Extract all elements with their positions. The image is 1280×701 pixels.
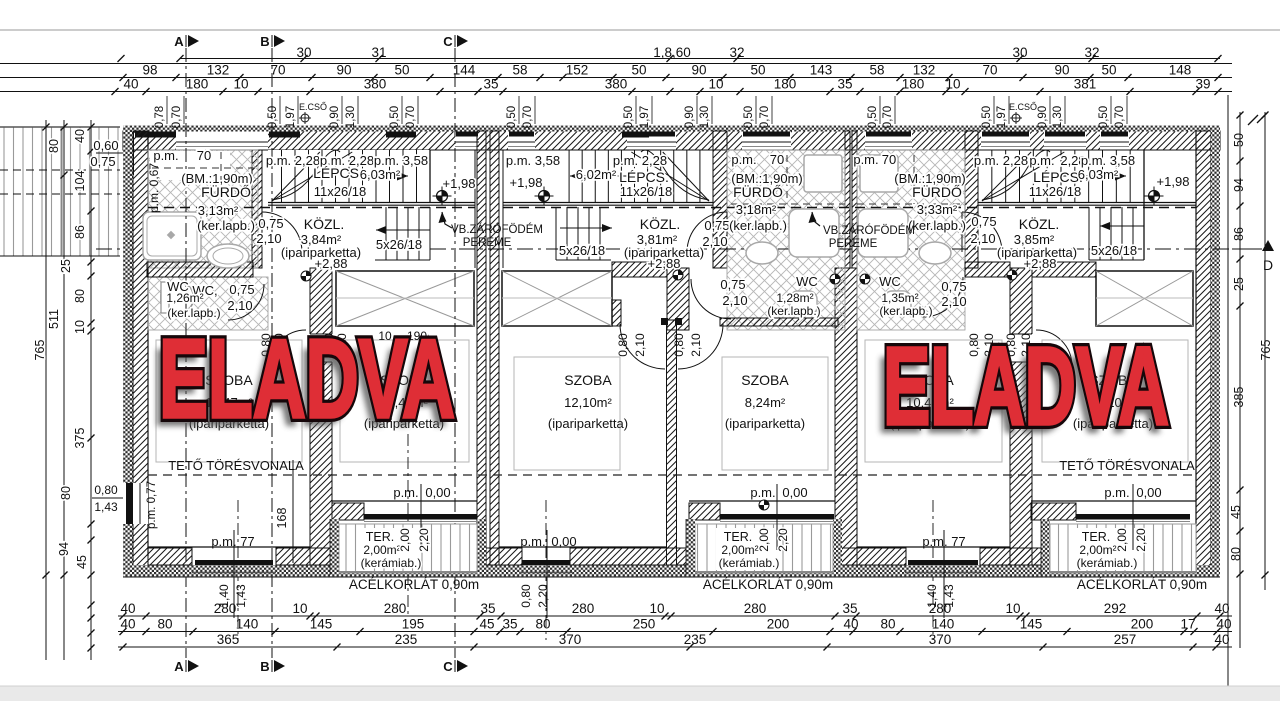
svg-text:WC: WC (879, 274, 901, 289)
svg-text:0,90: 0,90 (684, 106, 696, 128)
svg-text:B: B (260, 659, 269, 674)
svg-text:250: 250 (633, 617, 656, 632)
svg-text:C: C (443, 34, 453, 49)
svg-text:90: 90 (1054, 63, 1069, 78)
svg-text:104: 104 (73, 171, 87, 192)
svg-text:40: 40 (73, 129, 87, 143)
svg-text:58: 58 (869, 63, 884, 78)
svg-text:5x26/18: 5x26/18 (1091, 243, 1137, 258)
svg-text:(ker.lapb.): (ker.lapb.) (879, 304, 932, 318)
svg-text:6,02m²: 6,02m² (576, 167, 617, 182)
svg-text:C: C (443, 659, 453, 674)
svg-text:45: 45 (75, 555, 89, 569)
svg-text:180: 180 (186, 77, 209, 92)
svg-text:ACÉLKORLÁT 0,90m: ACÉLKORLÁT 0,90m (703, 577, 833, 592)
svg-text:0,50: 0,50 (623, 106, 635, 128)
svg-text:1,35m²: 1,35m² (881, 291, 918, 305)
svg-text:2,10: 2,10 (689, 333, 703, 357)
svg-text:11x26/18: 11x26/18 (314, 184, 367, 199)
svg-text:0,75: 0,75 (229, 282, 254, 297)
svg-text:40: 40 (843, 617, 858, 632)
svg-text:0,50: 0,50 (389, 106, 401, 128)
svg-text:10: 10 (292, 601, 307, 616)
svg-text:145: 145 (1020, 617, 1043, 632)
svg-text:10: 10 (1005, 601, 1020, 616)
svg-text:2,00m²: 2,00m² (363, 543, 400, 557)
svg-text:A: A (174, 659, 184, 674)
svg-text:35: 35 (502, 617, 517, 632)
svg-text:(kerámiab.): (kerámiab.) (1077, 556, 1138, 570)
svg-text:1,30: 1,30 (699, 106, 711, 128)
svg-text:45: 45 (1229, 505, 1243, 519)
svg-text:0,50: 0,50 (981, 106, 993, 128)
svg-text:0,80: 0,80 (94, 483, 118, 497)
svg-text:45: 45 (479, 617, 494, 632)
svg-text:148: 148 (1169, 63, 1192, 78)
svg-text:VB.ZÁRÓFÖDÉM: VB.ZÁRÓFÖDÉM (451, 223, 543, 236)
svg-text:200: 200 (767, 617, 790, 632)
svg-text:p.m. 2,28: p.m. 2,28 (266, 153, 320, 168)
svg-text:FÜRDŐ: FÜRDŐ (912, 183, 962, 200)
svg-text:50: 50 (1101, 63, 1116, 78)
svg-text:p.m.: p.m. (1029, 153, 1054, 168)
svg-text:80: 80 (1229, 547, 1243, 561)
svg-text:35: 35 (480, 601, 495, 616)
svg-text:35: 35 (842, 601, 857, 616)
svg-text:50: 50 (750, 63, 765, 78)
svg-text:40: 40 (1216, 617, 1231, 632)
svg-text:2,20: 2,20 (417, 528, 431, 552)
svg-text:94: 94 (57, 542, 71, 556)
svg-text:98: 98 (142, 63, 157, 78)
svg-text:VB.ZÁRÓFÖDÉM: VB.ZÁRÓFÖDÉM (823, 224, 915, 237)
svg-text:(ipariparketta): (ipariparketta) (548, 416, 628, 431)
svg-text:0,78: 0,78 (154, 106, 166, 128)
svg-text:140: 140 (932, 617, 955, 632)
svg-text:0,50: 0,50 (267, 106, 279, 128)
svg-text:3,13m²: 3,13m² (198, 203, 239, 218)
svg-text:2,00: 2,00 (1115, 528, 1129, 552)
svg-text:140: 140 (236, 617, 259, 632)
svg-text:32: 32 (729, 45, 744, 60)
svg-text:50: 50 (1232, 133, 1246, 147)
svg-text:(kerámiab.): (kerámiab.) (361, 556, 422, 570)
svg-text:2,10: 2,10 (970, 231, 995, 246)
svg-text:p.m. 3,58: p.m. 3,58 (1081, 153, 1135, 168)
svg-text:195: 195 (402, 617, 425, 632)
svg-text:1,97: 1,97 (639, 106, 651, 128)
svg-text:0,60: 0,60 (93, 138, 118, 153)
svg-text:90: 90 (336, 63, 351, 78)
svg-text:257: 257 (1114, 632, 1137, 647)
svg-text:p.m.: p.m. (750, 485, 775, 500)
svg-text:8,24m²: 8,24m² (745, 395, 786, 410)
svg-text:35: 35 (837, 77, 852, 92)
svg-text:2,10: 2,10 (702, 234, 727, 249)
svg-text:511: 511 (47, 309, 61, 329)
svg-text:+1,98: +1,98 (443, 176, 476, 191)
svg-text:0,70: 0,70 (882, 106, 894, 128)
svg-text:144: 144 (453, 63, 476, 78)
svg-text:132: 132 (207, 63, 230, 78)
svg-text:2,00: 2,00 (398, 528, 412, 552)
svg-text:40: 40 (123, 77, 138, 92)
svg-text:12,10m²: 12,10m² (564, 395, 612, 410)
svg-text:25: 25 (1232, 277, 1246, 291)
svg-text:31: 31 (371, 45, 386, 60)
svg-text:0,70: 0,70 (171, 106, 183, 128)
svg-text:1,40: 1,40 (217, 584, 231, 608)
svg-text:70: 70 (982, 63, 997, 78)
svg-text:LÉPCS.: LÉPCS. (619, 169, 669, 185)
svg-text:3,18m²: 3,18m² (736, 202, 777, 217)
svg-text:1,97: 1,97 (996, 106, 1008, 128)
svg-text:D: D (1263, 257, 1273, 273)
svg-text:(kerámiab.): (kerámiab.) (719, 556, 780, 570)
svg-text:TER.: TER. (1082, 530, 1110, 544)
svg-text:0,75: 0,75 (90, 154, 115, 169)
svg-text:25: 25 (59, 259, 73, 273)
svg-text:LÉPCS.: LÉPCS. (313, 165, 363, 181)
svg-text:0,80: 0,80 (672, 333, 686, 357)
svg-text:TER.: TER. (724, 530, 752, 544)
svg-text:94: 94 (1232, 178, 1246, 192)
svg-text:0,70: 0,70 (1114, 106, 1126, 128)
svg-text:80: 80 (59, 486, 73, 500)
svg-text:70: 70 (882, 152, 896, 167)
svg-text:p.m. 0,77: p.m. 0,77 (146, 481, 158, 529)
svg-text:6,03m²: 6,03m² (1078, 167, 1119, 182)
svg-text:p.m. 3,58: p.m. 3,58 (506, 153, 560, 168)
svg-text:FÜRDŐ: FÜRDŐ (733, 183, 783, 200)
svg-text:80: 80 (157, 617, 172, 632)
svg-text:39: 39 (1195, 77, 1210, 92)
svg-text:2,10: 2,10 (256, 231, 281, 246)
svg-text:+2,88: +2,88 (648, 256, 681, 271)
svg-text:p.m. 2,28: p.m. 2,28 (974, 153, 1028, 168)
svg-text:40: 40 (120, 617, 135, 632)
svg-text:3,33m²: 3,33m² (917, 202, 958, 217)
svg-text:KÖZL.: KÖZL. (640, 215, 680, 232)
svg-text:80: 80 (47, 139, 61, 153)
svg-text:380: 380 (605, 77, 628, 92)
svg-text:A: A (174, 34, 184, 49)
svg-text:2,20: 2,20 (1134, 528, 1148, 552)
svg-text:SZOBA: SZOBA (564, 372, 612, 388)
svg-text:FÜRDŐ: FÜRDŐ (201, 183, 251, 200)
svg-text:+1,98: +1,98 (1157, 174, 1190, 189)
svg-text:p.m.: p.m. (853, 152, 878, 167)
svg-text:B: B (260, 34, 269, 49)
svg-text:ELADVA: ELADVA (883, 325, 1169, 448)
svg-text:1,8,60: 1,8,60 (653, 45, 691, 60)
svg-text:LÉPCS.: LÉPCS. (1033, 169, 1083, 185)
svg-text:p.m.: p.m. (393, 485, 418, 500)
svg-text:292: 292 (1104, 601, 1127, 616)
svg-text:0,70: 0,70 (522, 106, 534, 128)
svg-text:1,43: 1,43 (942, 584, 956, 608)
svg-text:TER.: TER. (366, 530, 394, 544)
svg-text:235: 235 (684, 632, 707, 647)
svg-text:2,00m²: 2,00m² (1079, 543, 1116, 557)
svg-text:6,03m²: 6,03m² (360, 167, 401, 182)
svg-text:2,20: 2,20 (776, 528, 790, 552)
svg-text:1,28m²: 1,28m² (776, 291, 813, 305)
svg-text:10: 10 (73, 320, 87, 334)
svg-text:5x26/18: 5x26/18 (376, 237, 422, 252)
svg-text:385: 385 (1232, 387, 1246, 408)
svg-text:32: 32 (1084, 45, 1099, 60)
svg-text:1,26m²: 1,26m² (166, 291, 203, 305)
svg-text:381: 381 (1074, 77, 1097, 92)
svg-text:+2,88: +2,88 (315, 256, 348, 271)
svg-text:1,30: 1,30 (345, 106, 357, 128)
svg-text:80: 80 (880, 617, 895, 632)
svg-text:143: 143 (810, 63, 833, 78)
svg-text:5x26/18: 5x26/18 (559, 243, 605, 258)
svg-text:86: 86 (73, 225, 87, 239)
svg-text:+1,98: +1,98 (510, 175, 543, 190)
svg-text:2,00m²: 2,00m² (721, 543, 758, 557)
svg-text:17: 17 (1180, 617, 1195, 632)
svg-text:86: 86 (1232, 227, 1246, 241)
svg-text:0,75: 0,75 (941, 279, 966, 294)
svg-text:0,70: 0,70 (759, 106, 771, 128)
svg-text:365: 365 (217, 632, 240, 647)
svg-text:E.CSŐ: E.CSŐ (299, 102, 327, 112)
svg-text:1,30: 1,30 (1052, 106, 1064, 128)
svg-text:(ker.lapb.): (ker.lapb.) (908, 218, 966, 233)
svg-text:p.m. 0,67: p.m. 0,67 (147, 163, 161, 213)
svg-text:370: 370 (929, 632, 952, 647)
svg-text:70: 70 (770, 152, 784, 167)
svg-text:90: 90 (691, 63, 706, 78)
svg-text:KÖZL.: KÖZL. (1019, 215, 1059, 232)
svg-text:0,80: 0,80 (519, 584, 533, 608)
svg-text:40: 40 (1214, 601, 1229, 616)
svg-text:2,10: 2,10 (633, 333, 647, 357)
svg-text:1,43: 1,43 (94, 500, 118, 514)
svg-text:370: 370 (559, 632, 582, 647)
svg-text:11x26/18: 11x26/18 (1029, 184, 1082, 199)
svg-text:(ipariparketta): (ipariparketta) (725, 416, 805, 431)
svg-text:0,00: 0,00 (551, 534, 576, 549)
svg-text:p.m.: p.m. (731, 152, 756, 167)
svg-text:235: 235 (395, 632, 418, 647)
svg-text:0,75: 0,75 (258, 216, 283, 231)
svg-text:+2,88: +2,88 (1024, 256, 1057, 271)
svg-text:2,20: 2,20 (536, 584, 550, 608)
svg-text:PEREME: PEREME (829, 238, 878, 250)
svg-text:WC: WC (796, 274, 818, 289)
svg-text:0,75: 0,75 (971, 214, 996, 229)
svg-text:0,50: 0,50 (1098, 106, 1110, 128)
svg-text:p.m.: p.m. (1104, 485, 1129, 500)
svg-text:E.CSŐ: E.CSŐ (1009, 102, 1037, 112)
svg-text:0,50: 0,50 (867, 106, 879, 128)
svg-text:10: 10 (945, 77, 960, 92)
svg-text:168: 168 (275, 508, 289, 529)
svg-text:TETŐ TÖRÉSVONALA: TETŐ TÖRÉSVONALA (168, 458, 304, 473)
svg-text:50: 50 (631, 63, 646, 78)
svg-text:70: 70 (197, 148, 211, 163)
svg-text:0,75: 0,75 (720, 277, 745, 292)
svg-text:1,40: 1,40 (925, 584, 939, 608)
svg-text:30: 30 (1012, 45, 1027, 60)
svg-text:10: 10 (233, 77, 248, 92)
svg-text:SZOBA: SZOBA (741, 372, 789, 388)
svg-text:132: 132 (913, 63, 936, 78)
svg-text:p.m. 3,58: p.m. 3,58 (374, 153, 428, 168)
svg-text:2,10: 2,10 (722, 293, 747, 308)
svg-text:280: 280 (572, 601, 595, 616)
svg-text:40: 40 (1214, 632, 1229, 647)
svg-text:152: 152 (566, 63, 589, 78)
svg-text:0,75: 0,75 (704, 218, 729, 233)
svg-text:380: 380 (364, 77, 387, 92)
svg-text:200: 200 (1131, 617, 1154, 632)
svg-text:ACÉLKORLÁT 0,90m: ACÉLKORLÁT 0,90m (1077, 577, 1207, 592)
svg-text:58: 58 (512, 63, 527, 78)
svg-text:80: 80 (535, 617, 550, 632)
svg-text:PEREME: PEREME (463, 237, 512, 249)
svg-text:30: 30 (296, 45, 311, 60)
svg-text:(ker.lapb.): (ker.lapb.) (197, 218, 255, 233)
svg-text:p.m. 2,28: p.m. 2,28 (613, 153, 667, 168)
svg-text:(ker.lapb.): (ker.lapb.) (767, 304, 820, 318)
svg-text:ACÉLKORLÁT 0,90m: ACÉLKORLÁT 0,90m (349, 577, 479, 592)
svg-text:p.m.: p.m. (153, 148, 178, 163)
svg-text:ELADVA: ELADVA (159, 317, 455, 441)
svg-text:0,00: 0,00 (1136, 485, 1161, 500)
svg-text:0,80: 0,80 (616, 333, 630, 357)
svg-text:180: 180 (774, 77, 797, 92)
svg-text:765: 765 (1259, 340, 1273, 361)
svg-text:80: 80 (73, 289, 87, 303)
svg-text:2,10: 2,10 (941, 294, 966, 309)
svg-text:0,90: 0,90 (329, 106, 341, 128)
svg-text:375: 375 (73, 428, 87, 449)
svg-text:35: 35 (483, 77, 498, 92)
svg-text:765: 765 (33, 340, 47, 361)
svg-text:0,70: 0,70 (405, 106, 417, 128)
svg-text:0,90: 0,90 (1037, 106, 1049, 128)
svg-text:1,97: 1,97 (285, 106, 297, 128)
svg-text:40: 40 (120, 601, 135, 616)
svg-text:70: 70 (270, 63, 285, 78)
svg-text:0,00: 0,00 (425, 485, 450, 500)
svg-text:KÖZL.: KÖZL. (304, 215, 344, 232)
svg-text:TETŐ TÖRÉSVONALA: TETŐ TÖRÉSVONALA (1059, 458, 1195, 473)
svg-text:0,50: 0,50 (743, 106, 755, 128)
svg-text:50: 50 (394, 63, 409, 78)
svg-text:0,50: 0,50 (506, 106, 518, 128)
svg-text:11x26/18: 11x26/18 (620, 184, 673, 199)
svg-text:10: 10 (649, 601, 664, 616)
svg-text:1,43: 1,43 (234, 584, 248, 608)
svg-text:p.m.: p.m. (520, 534, 545, 549)
svg-text:2,00: 2,00 (757, 528, 771, 552)
svg-text:180: 180 (902, 77, 925, 92)
svg-text:2,10: 2,10 (227, 298, 252, 313)
svg-text:280: 280 (384, 601, 407, 616)
svg-text:145: 145 (310, 617, 333, 632)
svg-text:280: 280 (744, 601, 767, 616)
svg-text:p.m. 77: p.m. 77 (211, 534, 254, 549)
svg-text:(ker.lapb.): (ker.lapb.) (729, 218, 787, 233)
svg-text:0,00: 0,00 (782, 485, 807, 500)
svg-text:10: 10 (708, 77, 723, 92)
